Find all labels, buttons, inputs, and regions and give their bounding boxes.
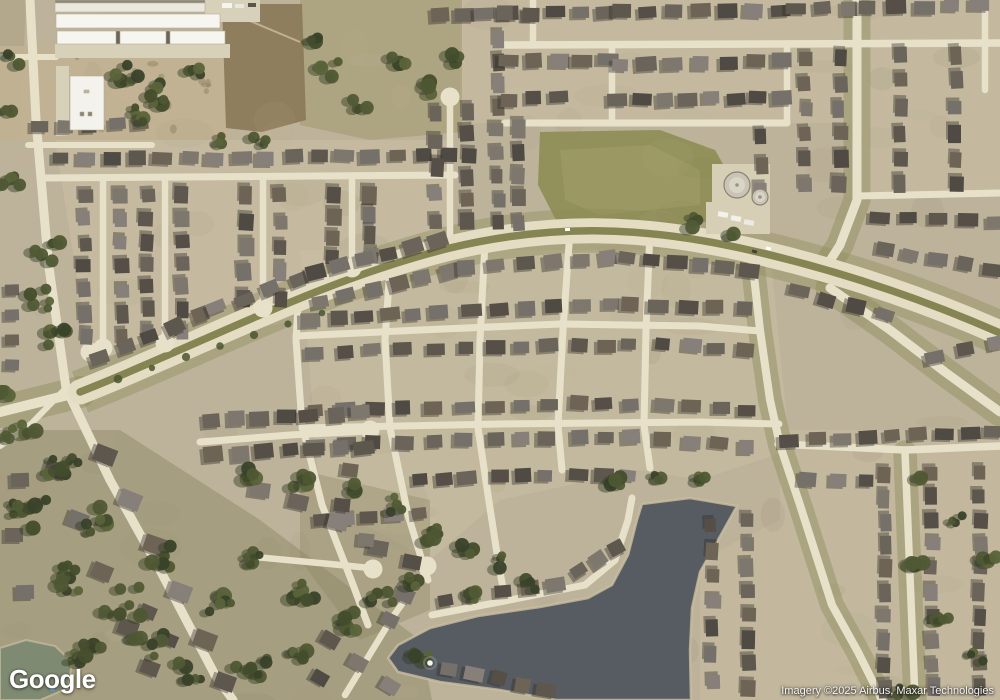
- satellite-imagery-canvas[interactable]: [0, 0, 1000, 700]
- imagery-attribution: Imagery ©2025 Airbus, Maxar Technologies: [781, 685, 994, 697]
- google-logo[interactable]: Google: [9, 664, 96, 695]
- satellite-map-viewport[interactable]: Google Imagery ©2025 Airbus, Maxar Techn…: [0, 0, 1000, 700]
